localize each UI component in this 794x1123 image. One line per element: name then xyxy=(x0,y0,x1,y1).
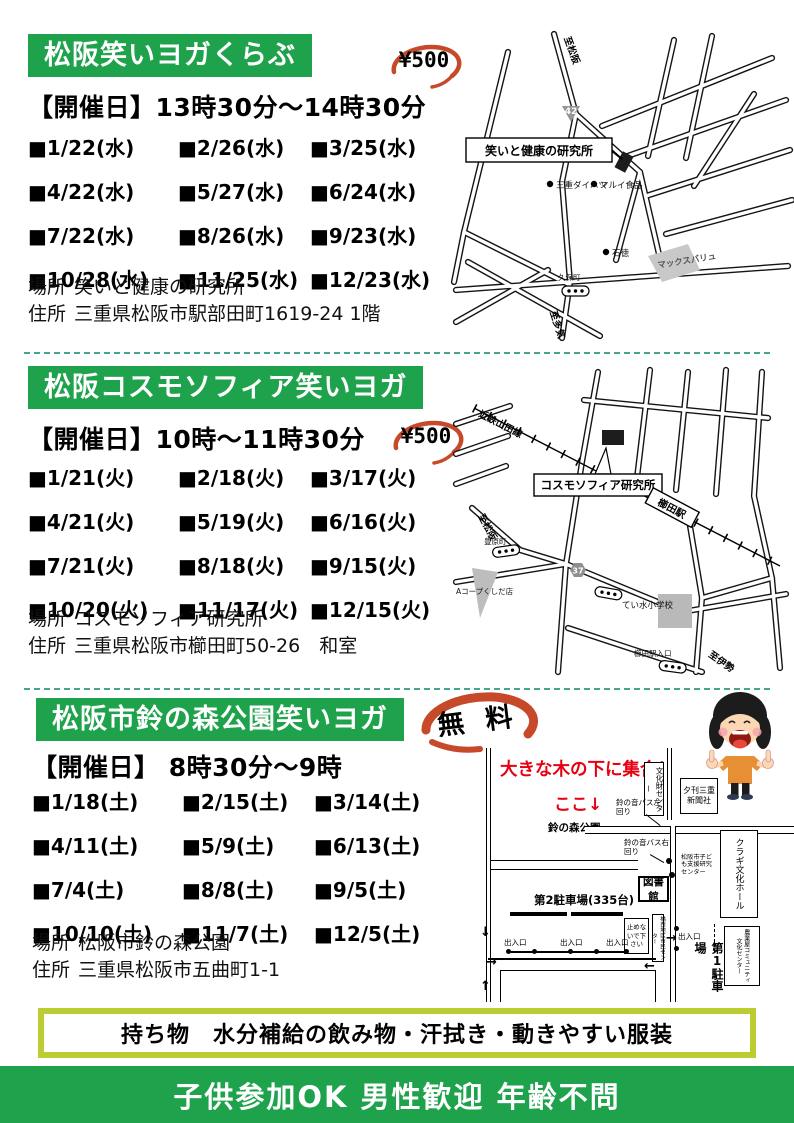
date-item: ■4/22(水) xyxy=(28,176,178,205)
exit-label: 出入口 xyxy=(606,938,629,947)
arrow-down-icon: ↓ xyxy=(480,926,491,939)
date-item: ■6/13(土) xyxy=(314,830,457,859)
section3-schedule: 【開催日】 8時30分～9時 xyxy=(32,748,342,784)
north-road xyxy=(667,748,672,820)
date-item: ■2/26(水) xyxy=(178,132,310,161)
busstop-dot-icon xyxy=(674,946,679,951)
exit-label: 出入口 xyxy=(678,932,701,941)
section1-dates: ■1/22(水)■2/26(水)■3/25(水) ■4/22(水)■5/27(水… xyxy=(28,132,453,293)
map2-roads xyxy=(456,370,786,672)
arrow-right-icon: → xyxy=(486,956,497,969)
bottom-banner: 子供参加OK 男性歓迎 年齢不問 xyxy=(0,1066,794,1123)
parking1-label: 第1駐車場 xyxy=(692,942,726,1002)
busstop-dot-icon xyxy=(669,872,675,878)
section2-address: 住所三重県松阪市櫛田町50-26 和室 xyxy=(28,631,357,658)
date-item: ■3/14(土) xyxy=(314,786,457,815)
east-west-road xyxy=(585,826,794,834)
kodomo-center-label: 松阪市子ども支援研究センター xyxy=(681,854,717,876)
separator-1 xyxy=(24,352,770,354)
arrow-right-icon: → xyxy=(666,932,677,945)
date-item: ■12/15(火) xyxy=(310,594,453,623)
to-ise-label: 至伊勢 xyxy=(706,649,737,675)
busstop-icon xyxy=(562,286,589,296)
laughing-person-illustration xyxy=(688,686,792,802)
arrow-up-icon: ↑ xyxy=(480,980,491,993)
price-text: ¥500 xyxy=(401,424,452,448)
section3-title: 松阪市鈴の森公園笑いヨガ xyxy=(36,698,404,741)
park-east-road xyxy=(670,826,676,1002)
map-venue2: 近鉄山田線 コスモソフィア研究所 櫛田駅 37 てい水小学校 Aコープくしだ店 … xyxy=(450,366,794,680)
date-item: ■9/23(水) xyxy=(310,220,453,249)
venue-label: 笑いと健康の研究所 xyxy=(485,143,593,158)
route-42-number: 42 xyxy=(565,107,578,117)
date-item: ■2/18(火) xyxy=(178,462,310,491)
date-item: ■9/5(土) xyxy=(314,874,457,903)
date-item: ■7/22(水) xyxy=(28,220,178,249)
address-value: 三重県松阪市駅部田町1619-24 1階 xyxy=(74,303,381,325)
date-item: ■4/11(土) xyxy=(32,830,182,859)
fence-dot-icon xyxy=(532,949,537,954)
nogyoya-center-box: 農業屋コミュニティ文化センター xyxy=(724,926,760,986)
separator-2 xyxy=(24,688,770,690)
date-item: ■8/8(土) xyxy=(182,874,314,903)
date-item: ■1/21(火) xyxy=(28,462,178,491)
date-item: ■3/17(火) xyxy=(310,462,453,491)
exit-label: 出入口 xyxy=(504,938,527,947)
date-item: ■5/9(土) xyxy=(182,830,314,859)
place-value: コスモソフィア研究所 xyxy=(74,608,264,630)
section3-place: 場所松阪市鈴の森公園 xyxy=(32,928,230,955)
school-building-shape xyxy=(658,594,692,628)
date-item: ■7/21(火) xyxy=(28,550,178,579)
date-item: ■6/24(水) xyxy=(310,176,453,205)
exit-label: 出入口 xyxy=(560,938,583,947)
date-item: ■12/23(水) xyxy=(310,264,453,293)
arrow-left-icon: ← xyxy=(644,960,655,973)
date-item: ■5/19(火) xyxy=(178,506,310,535)
section1-place: 場所笑いと健康の研究所 xyxy=(28,272,245,299)
here-text: ここ↓ xyxy=(554,790,602,815)
busstop-icon xyxy=(492,544,520,558)
venue-pointer-icon xyxy=(595,448,611,474)
date-item: ■5/27(水) xyxy=(178,176,310,205)
fence-dot-icon xyxy=(624,949,629,954)
date-item: ■7/4(土) xyxy=(32,874,182,903)
date-item: ■4/21(火) xyxy=(28,506,178,535)
place-label: 場所 xyxy=(28,608,66,630)
place-label: 場所 xyxy=(28,276,66,298)
parking-bar-icon xyxy=(510,912,567,916)
section1-schedule: 【開催日】13時30分～14時30分 xyxy=(28,88,426,124)
poi2-label: マルイ食品 xyxy=(600,180,643,191)
section2-schedule: 【開催日】10時～11時30分 xyxy=(28,420,365,456)
busstop-dot-icon xyxy=(674,926,679,931)
park-south-road xyxy=(491,860,638,870)
price-text: ¥500 xyxy=(399,48,450,72)
busstop-kubocho-label: 久保町 xyxy=(558,272,581,282)
section1-title: 松阪笑いヨガくらぶ xyxy=(28,34,312,77)
badge-tail-icon xyxy=(432,76,452,87)
parking2-label: 第2駐車場(335台) xyxy=(534,894,634,908)
route-37-number: 37 xyxy=(572,567,583,576)
station-entrance-label: 櫛田駅入口 xyxy=(634,648,672,658)
section3-address: 住所三重県松阪市五曲町1-1 xyxy=(32,955,280,982)
south-road-line xyxy=(488,958,656,960)
busstop-dot-icon xyxy=(666,858,672,864)
belongings-box: 持ち物 水分補給の飲み物・汗拭き・動きやすい服装 xyxy=(38,1008,756,1058)
kuragi-hall-box: クラギ文化ホール xyxy=(720,830,758,918)
fence-dot-icon xyxy=(568,949,573,954)
south-parking-block xyxy=(500,970,656,1002)
date-item: ■12/5(土) xyxy=(314,918,457,947)
address-label: 住所 xyxy=(28,635,66,657)
map-venue1: マックスバリュ 42 至松阪 至多気 笑いと健康の研究所 三重ダイハツ マルイ食… xyxy=(450,30,794,346)
poi3-label: 石徳 xyxy=(612,248,630,259)
address-value: 三重県松阪市櫛田町50-26 和室 xyxy=(74,635,357,657)
date-item: ■2/15(土) xyxy=(182,786,314,815)
library-box: 図書館 xyxy=(638,876,669,902)
date-item: ■8/26(水) xyxy=(178,220,310,249)
date-item: ■8/18(火) xyxy=(178,550,310,579)
fence-dot-icon xyxy=(506,949,511,954)
parking-bar-icon xyxy=(571,912,623,916)
date-item: ■3/25(水) xyxy=(310,132,453,161)
poi-dot-icon xyxy=(603,249,609,255)
school-label: てい水小学校 xyxy=(622,600,674,611)
venue-building-icon xyxy=(602,430,624,445)
section3-dates: ■1/18(土)■2/15(土)■3/14(土) ■4/11(土)■5/9(土)… xyxy=(32,786,457,947)
date-item: ■6/16(火) xyxy=(310,506,453,535)
flyer-page: 松阪笑いヨガくらぶ ¥500 【開催日】13時30分～14時30分 ■1/22(… xyxy=(0,0,794,1123)
venue-label: コスモソフィア研究所 xyxy=(541,478,656,492)
section2-place: 場所コスモソフィア研究所 xyxy=(28,604,264,631)
poi-dot-icon xyxy=(591,181,597,187)
poi-dot-icon xyxy=(547,181,553,187)
date-item: ■1/18(土) xyxy=(32,786,182,815)
station-box: 櫛田駅 xyxy=(645,488,699,527)
address-value: 三重県松阪市五曲町1-1 xyxy=(78,959,280,981)
bus-left-label: 鈴の音バス左回り xyxy=(616,798,662,816)
badge-tail-icon xyxy=(432,742,480,750)
fence-dot-icon xyxy=(594,949,599,954)
address-label: 住所 xyxy=(28,303,66,325)
address-label: 住所 xyxy=(32,959,70,981)
place-value: 松阪市鈴の森公園 xyxy=(78,932,230,954)
date-item: ■9/15(火) xyxy=(310,550,453,579)
busstop-icon xyxy=(659,660,687,674)
bus-right-label: 鈴の音バス右回り xyxy=(624,838,670,856)
shimin-center-box: 橋西地区市民センター xyxy=(652,914,664,962)
section2-title: 松阪コスモソフィア笑いヨガ xyxy=(28,366,423,409)
store-label: Aコープくしだ店 xyxy=(456,586,514,596)
section2-dates: ■1/21(火)■2/18(火)■3/17(火) ■4/21(火)■5/19(火… xyxy=(28,462,453,623)
place-label: 場所 xyxy=(32,932,70,954)
place-value: 笑いと健康の研究所 xyxy=(74,276,245,298)
section1-address: 住所三重県松阪市駅部田町1619-24 1階 xyxy=(28,299,381,326)
date-item: ■1/22(水) xyxy=(28,132,178,161)
